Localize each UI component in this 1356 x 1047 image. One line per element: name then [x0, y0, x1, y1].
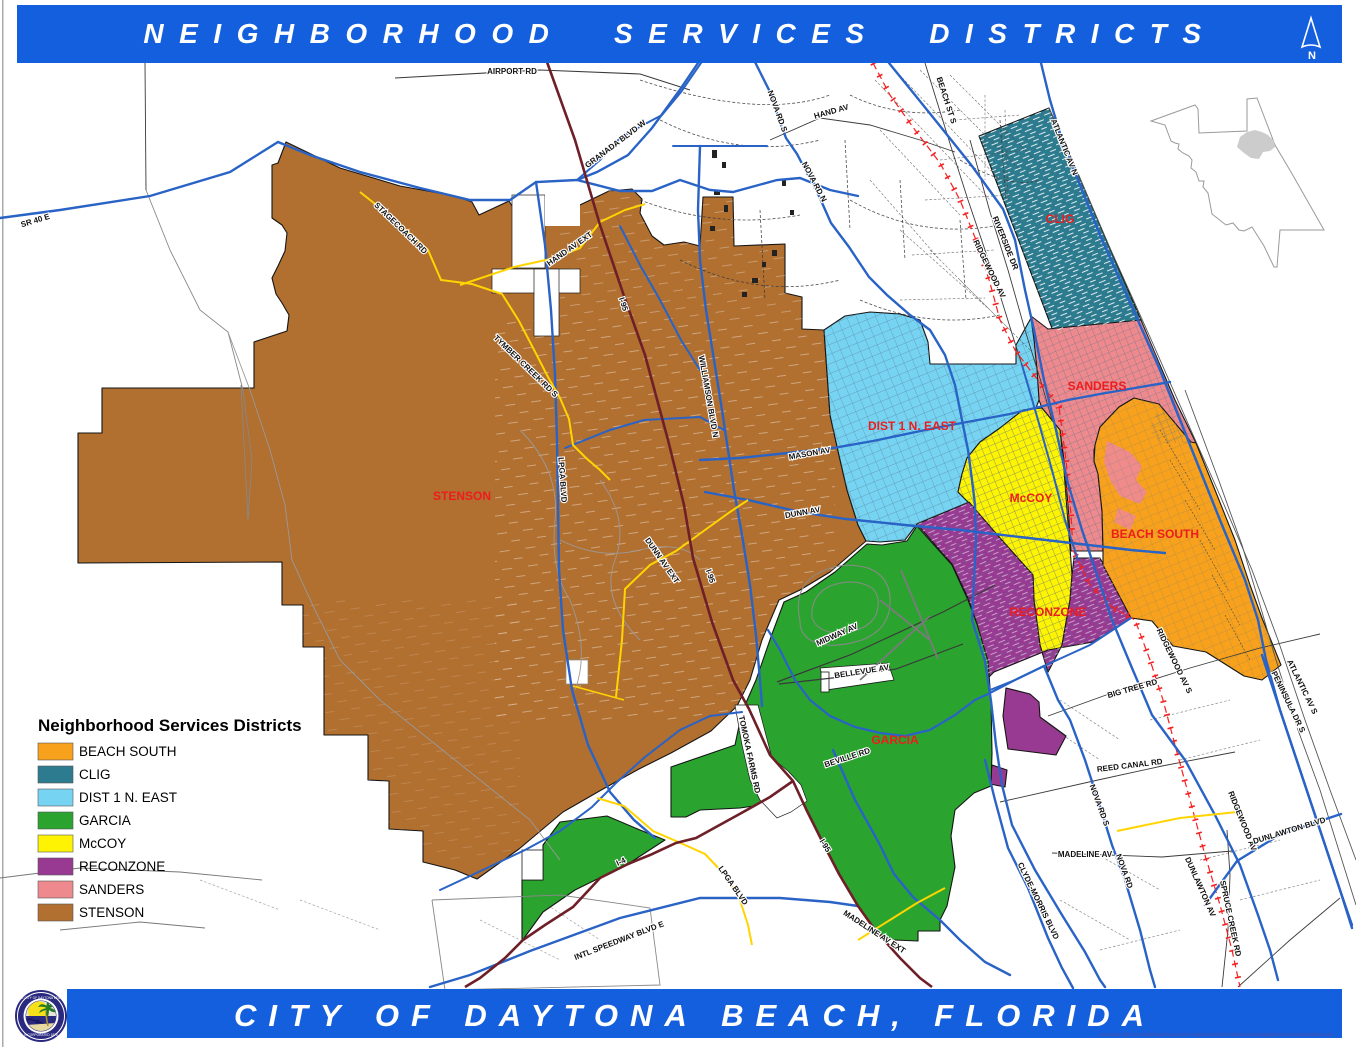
svg-text:CLIG: CLIG	[79, 767, 111, 782]
svg-text:DIST 1 N. EAST: DIST 1 N. EAST	[79, 790, 177, 805]
svg-text:NEIGHBORHOOD SERVICES DISTRI: NEIGHBORHOOD SERVICES DISTRICTS	[143, 18, 1216, 49]
svg-text:McCOY: McCOY	[1010, 491, 1053, 505]
svg-text:Neighborhood Services District: Neighborhood Services Districts	[38, 716, 302, 735]
svg-text:STENSON: STENSON	[433, 489, 491, 503]
svg-text:RECONZONE: RECONZONE	[1010, 605, 1087, 619]
svg-text:MADELINE AV: MADELINE AV	[1058, 850, 1113, 859]
svg-text:DIST 1 N. EAST: DIST 1 N. EAST	[868, 419, 957, 433]
svg-text:BEACH SOUTH: BEACH SOUTH	[1111, 527, 1199, 541]
svg-text:SANDERS: SANDERS	[79, 882, 144, 897]
svg-text:THE CITY OF DAYTONA BEACH: THE CITY OF DAYTONA BEACH	[17, 996, 65, 1000]
svg-text:INCORPORATED 1876: INCORPORATED 1876	[24, 1033, 58, 1037]
svg-text:N: N	[1308, 50, 1316, 62]
svg-text:McCOY: McCOY	[79, 836, 126, 851]
svg-text:SANDERS: SANDERS	[1068, 379, 1127, 393]
svg-text:RECONZONE: RECONZONE	[79, 859, 165, 874]
svg-text:BEACH SOUTH: BEACH SOUTH	[79, 744, 177, 759]
svg-text:CLIG: CLIG	[1046, 212, 1075, 226]
svg-text:STENSON: STENSON	[79, 905, 144, 920]
svg-text:AIRPORT RD: AIRPORT RD	[487, 67, 537, 76]
svg-text:GARCIA: GARCIA	[871, 733, 919, 747]
svg-text:CITY OF DAYTONA BEACH, FLORIDA: CITY OF DAYTONA BEACH, FLORIDA	[234, 998, 1156, 1033]
svg-text:Document Path: P:\ActiveProjec: Document Path: P:\ActiveProjects\Long Te…	[1100, 1032, 1333, 1037]
svg-text:GARCIA: GARCIA	[79, 813, 131, 828]
